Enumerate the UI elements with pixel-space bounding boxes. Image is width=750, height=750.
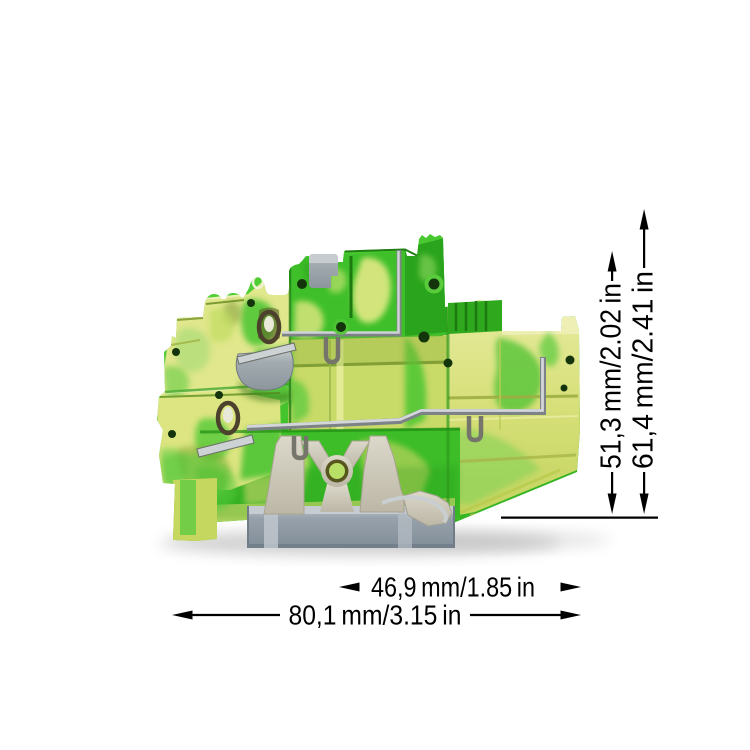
svg-text:61,4 mm/2.41 in: 61,4 mm/2.41 in <box>628 271 660 469</box>
svg-text:80,1 mm/3.15 in: 80,1 mm/3.15 in <box>289 600 462 631</box>
svg-text:46,9 mm/1.85 in: 46,9 mm/1.85 in <box>371 572 535 603</box>
svg-text:51,3 mm/2.02 in: 51,3 mm/2.02 in <box>596 283 628 469</box>
